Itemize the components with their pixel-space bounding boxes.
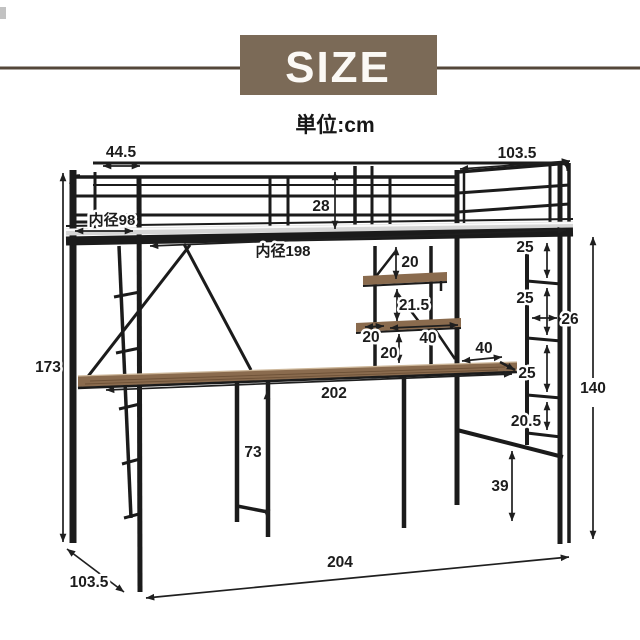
label-shelf-offset: 20: [362, 329, 379, 346]
shelf-brace-3: [434, 328, 455, 359]
label-end-depth: 103.5: [498, 145, 537, 162]
right-ladder-rung-2: [527, 338, 561, 341]
dim-line-desk-clearance: [462, 357, 502, 361]
label-shelf-to-shelf: 21.5: [399, 297, 430, 314]
label-desk-length: 202: [321, 385, 347, 402]
diagonal-brace-2: [184, 244, 251, 370]
dimension-labels: 44.5 103.5 28 内径98 内径198 173 20 21.5 20 …: [35, 144, 606, 591]
dim-line-shelf-offset: [365, 326, 384, 327]
left-ladder-rung-3: [119, 404, 140, 409]
corner-smudge: [0, 7, 6, 19]
label-desk-clearance: 40: [475, 340, 492, 357]
label-underbed-height: 140: [580, 380, 606, 397]
left-ladder-rung-2: [116, 348, 140, 353]
end-panel-mid-rail-1: [458, 185, 569, 193]
right-ladder-rung-3: [527, 395, 561, 398]
right-ladder-rung-1: [527, 281, 561, 284]
size-diagram-page: SIZE 単位:cm: [0, 0, 640, 640]
label-total-length: 204: [327, 554, 353, 571]
unit-note: 単位:cm: [295, 113, 374, 137]
label-total-height: 173: [35, 359, 61, 376]
right-ladder-rung-4: [527, 433, 561, 437]
banner-title: SIZE: [285, 43, 391, 92]
label-total-depth: 103.5: [70, 574, 109, 591]
label-ladder-gap-2: 25: [516, 290, 534, 307]
label-shelf-width: 40: [419, 330, 436, 347]
desk-leg-crossbar: [237, 506, 268, 512]
label-head-width: 44.5: [106, 144, 137, 161]
diagonal-brace-1: [79, 245, 190, 388]
label-shelf-to-desk: 20: [380, 345, 397, 362]
label-desk-height: 73: [244, 444, 262, 461]
label-ladder-gap-4: 20.5: [511, 413, 542, 430]
label-inner-length: 内径198: [255, 242, 310, 260]
label-inner-depth: 内径98: [89, 211, 136, 229]
left-ladder-rung-5: [124, 514, 139, 518]
dim-line-total-length: [146, 557, 569, 598]
label-ladder-width: 26: [561, 311, 579, 328]
left-ladder-rung-1: [114, 292, 140, 297]
wood-surfaces: [78, 272, 517, 388]
label-bed-to-shelf: 20: [401, 254, 418, 271]
header-banner: SIZE: [0, 35, 640, 95]
label-rail-to-floor: 39: [491, 478, 509, 495]
end-panel-mid-rail-2: [458, 204, 569, 212]
label-ladder-gap-1: 25: [516, 239, 534, 256]
size-diagram: SIZE 単位:cm: [0, 0, 640, 640]
label-ladder-gap-3: 25: [518, 365, 536, 382]
label-guardrail-height: 28: [312, 198, 330, 215]
